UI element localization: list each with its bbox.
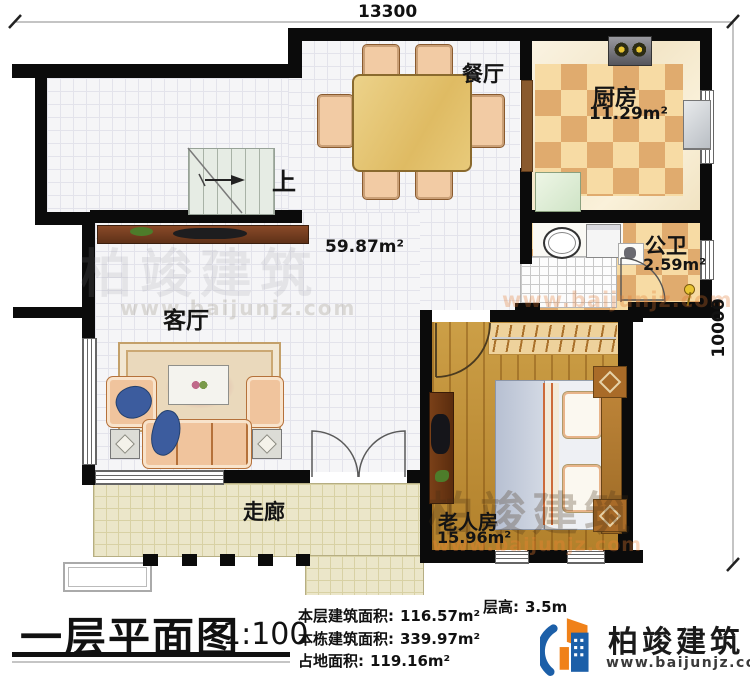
dimension-height-label: 10000 xyxy=(709,293,729,363)
floor-plan-canvas: 柏竣建筑 www.baijunjz.com www.baijunjz.com 柏… xyxy=(0,0,750,688)
stat-building-area-label: 本栋建筑面积: xyxy=(298,628,394,651)
entry-door-left-leaf xyxy=(312,431,358,477)
stat-building-area-value: 339.97m² xyxy=(400,628,480,651)
stat-floor-height-label: 层高: xyxy=(483,596,519,619)
stat-land-area-label: 占地面积: xyxy=(298,650,364,673)
plan-scale: 1:100 xyxy=(222,617,308,652)
stairs-break-mark xyxy=(199,174,205,186)
corridor-label: 走廊 xyxy=(243,496,285,526)
title-block: 一层平面图 1:100 本层建筑面积: 116.57m² 本栋建筑面积: 339… xyxy=(0,595,750,688)
dining-label: 餐厅 xyxy=(462,58,504,88)
bedroom-door-arc xyxy=(436,323,490,377)
logo-swoosh xyxy=(541,629,554,672)
stats-block: 本层建筑面积: 116.57m² 本栋建筑面积: 339.97m² 占地面积: … xyxy=(298,605,480,673)
kitchen-area-label: 11.29m² xyxy=(589,104,668,124)
stairs-arrow-head xyxy=(231,175,245,185)
hall-area-label: 59.87m² xyxy=(325,237,404,257)
logo-orange-low xyxy=(560,647,569,670)
bedroom-area-label: 15.96m² xyxy=(437,528,511,547)
stat-floor-area: 本层建筑面积: 116.57m² xyxy=(298,605,480,628)
brand-site: www.baijunjz.com xyxy=(606,655,750,671)
entry-door-right-leaf xyxy=(359,431,405,477)
logo-blue-tower xyxy=(571,633,589,672)
stat-land-area-value: 119.16m² xyxy=(370,650,450,673)
brand-logo-icon xyxy=(540,612,602,678)
stat-floor-area-label: 本层建筑面积: xyxy=(298,605,394,628)
stat-land-area: 占地面积: 119.16m² xyxy=(298,650,480,673)
stairs-up-label: 上 xyxy=(272,162,296,197)
living-label: 客厅 xyxy=(163,301,209,335)
title-underline-thick xyxy=(12,652,290,657)
stat-floor-area-value: 116.57m² xyxy=(400,605,480,628)
bath-area-label: 2.59m² xyxy=(643,255,706,274)
brand-logo: 柏竣建筑 www.baijunjz.com xyxy=(540,612,745,682)
stat-building-area: 本栋建筑面积: 339.97m² xyxy=(298,628,480,651)
plan-linework-overlay xyxy=(0,0,750,600)
dimension-width-label: 13300 xyxy=(358,2,417,22)
title-underline-thin xyxy=(12,661,290,663)
